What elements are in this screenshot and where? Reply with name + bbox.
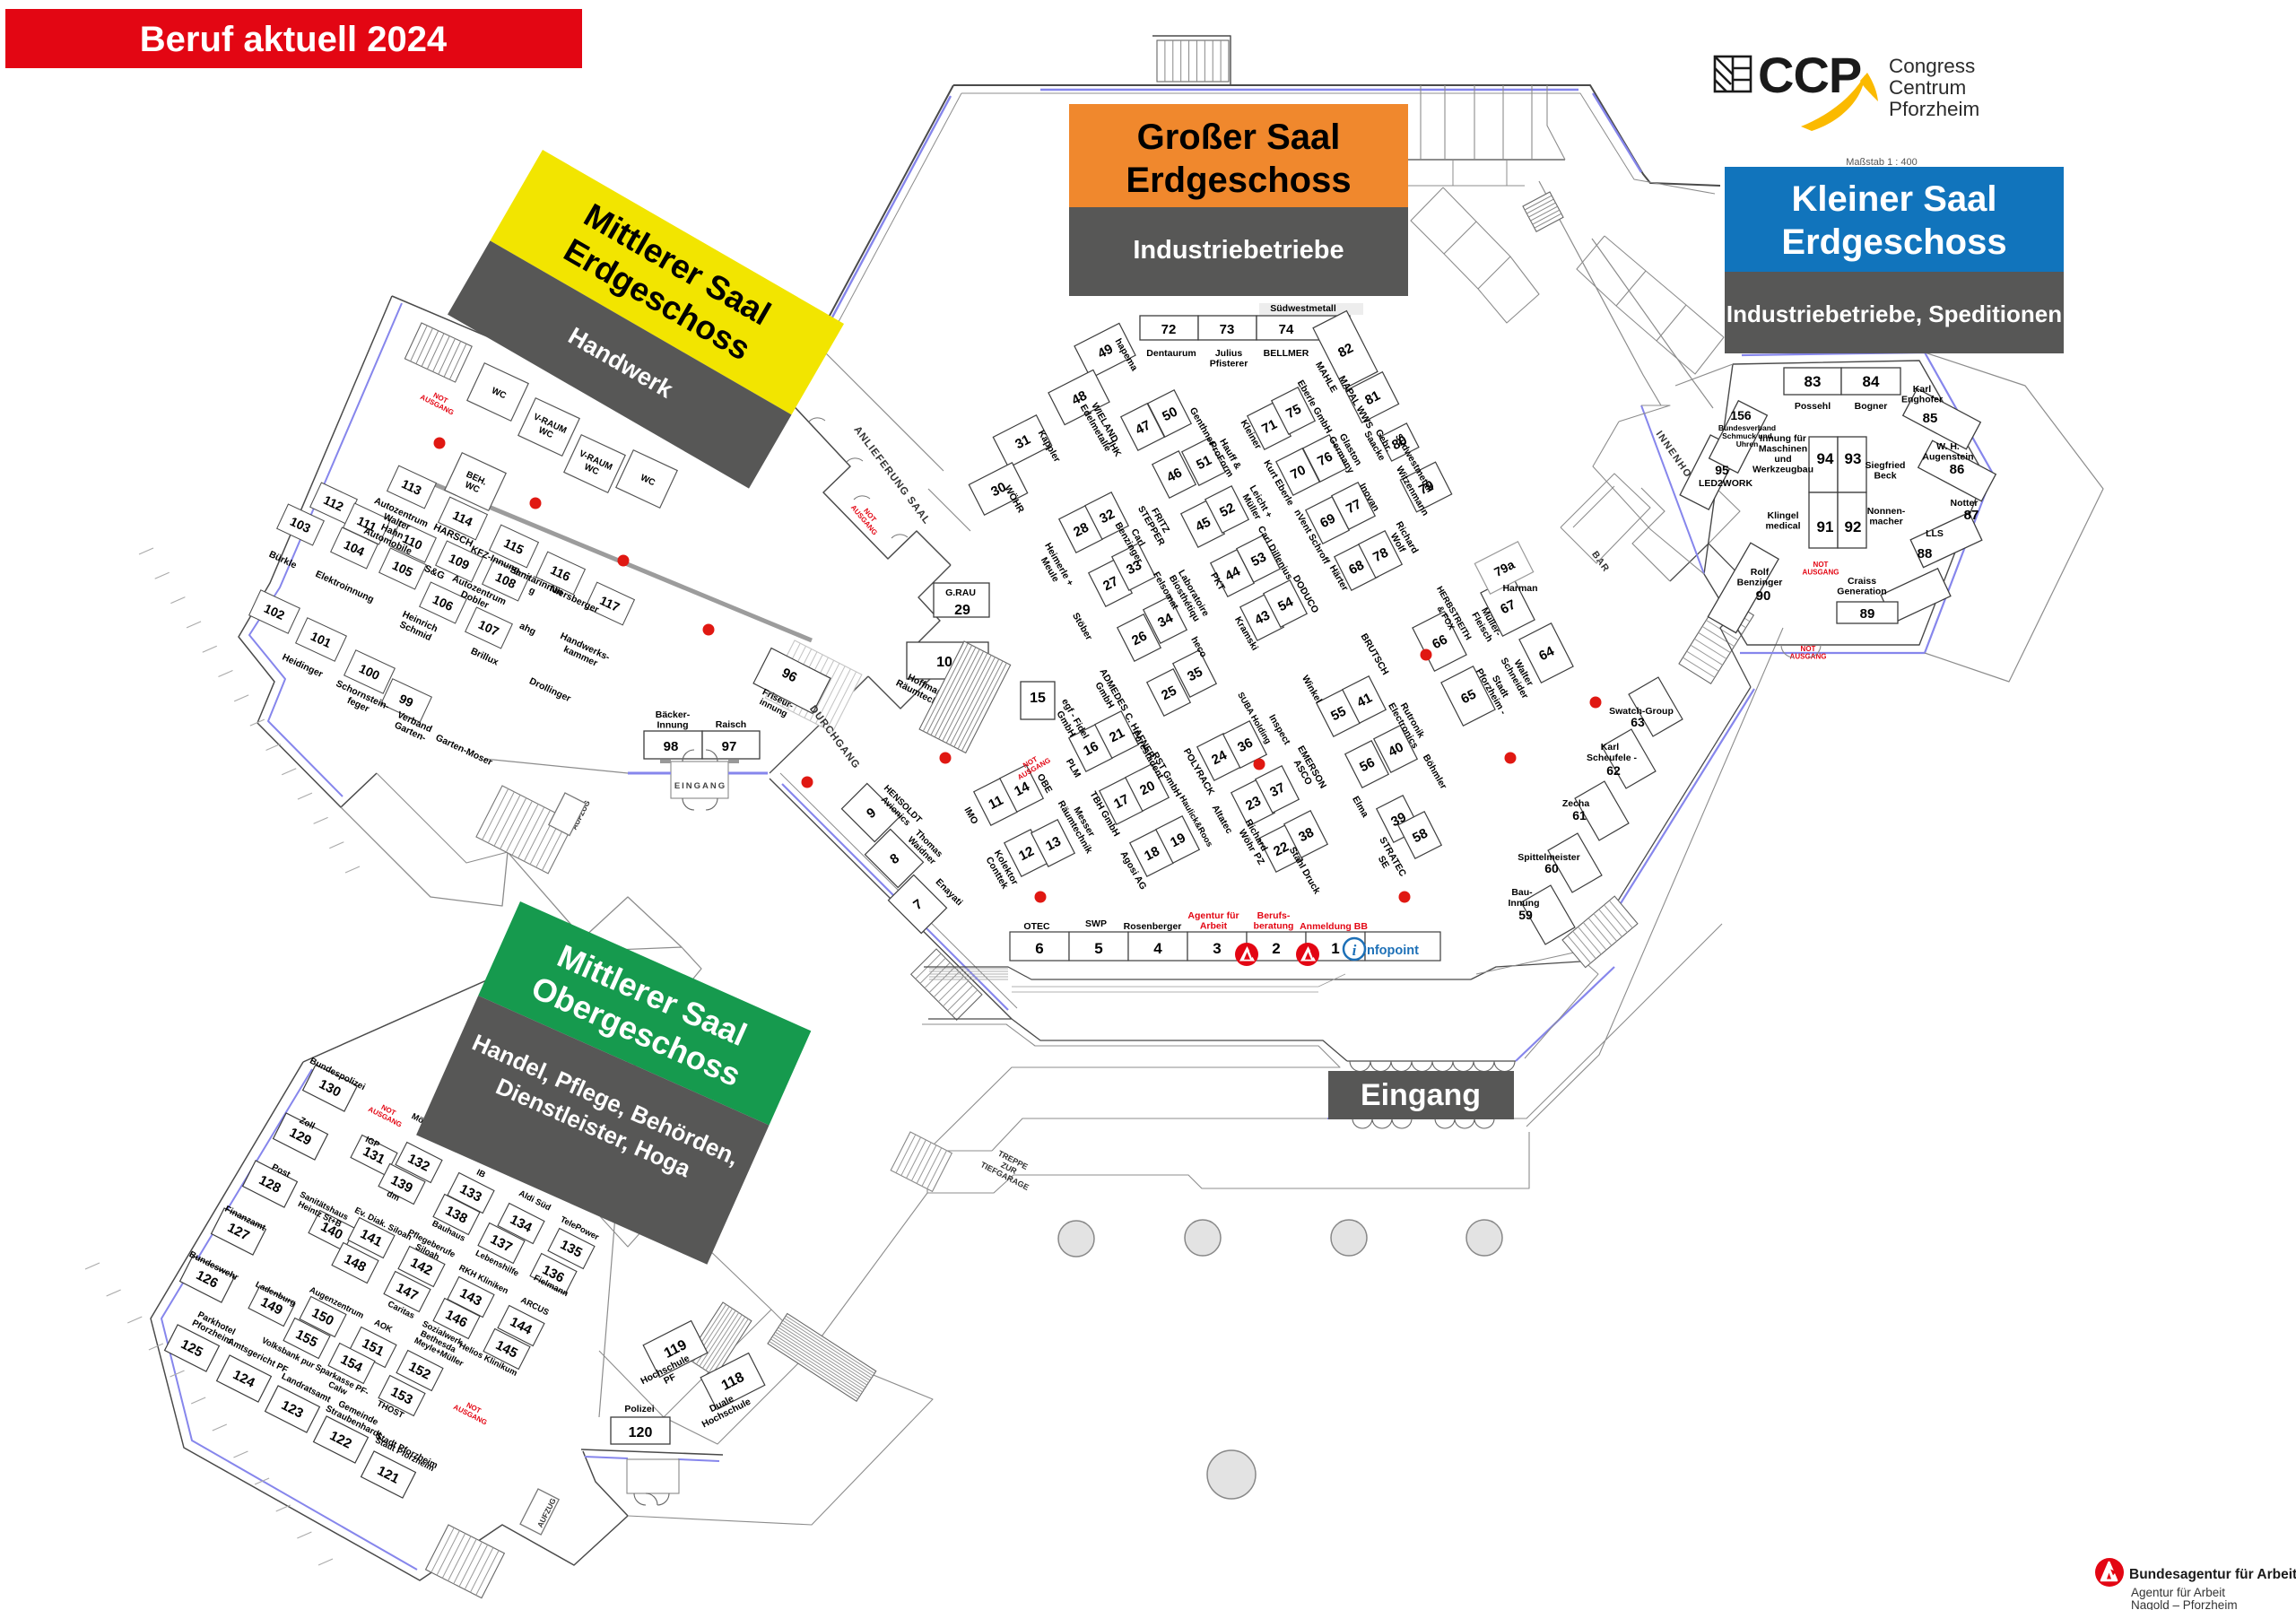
svg-text:74: 74 [1279,322,1294,337]
svg-text:72: 72 [1161,322,1177,337]
svg-text:Bäcker-Innung: Bäcker-Innung [656,709,691,731]
svg-text:2: 2 [1272,940,1280,957]
svg-text:Nonnen-macher: Nonnen-macher [1867,506,1906,527]
svg-text:OTEC: OTEC [1023,921,1050,932]
svg-text:1: 1 [1331,940,1339,957]
svg-text:156: 156 [1730,408,1752,422]
svg-text:Erdgeschoss: Erdgeschoss [1126,161,1351,200]
svg-text:nfopoint: nfopoint [1367,944,1419,958]
svg-text:85: 85 [1923,411,1938,426]
svg-text:Großer Saal: Großer Saal [1137,117,1341,157]
svg-text:Industriebetriebe, Speditionen: Industriebetriebe, Speditionen [1726,300,2062,327]
svg-text:Scheufele -: Scheufele - [1587,753,1638,763]
svg-text:73: 73 [1220,322,1235,337]
svg-text:i: i [1352,942,1357,959]
svg-text:JuliusPfisterer: JuliusPfisterer [1210,348,1248,370]
svg-text:EINGANG: EINGANG [674,781,726,791]
svg-text:10: 10 [936,655,952,670]
svg-text:29: 29 [954,603,970,618]
svg-text:Bogner: Bogner [1855,401,1888,412]
svg-text:Raisch: Raisch [716,719,746,730]
svg-text:89: 89 [1860,606,1875,622]
svg-text:83: 83 [1805,373,1822,390]
svg-text:Industriebetriebe: Industriebetriebe [1133,236,1344,265]
svg-text:Agentur für Arbeit: Agentur für Arbeit [2131,1586,2225,1599]
svg-text:90: 90 [1756,588,1771,604]
svg-text:4: 4 [1153,940,1162,957]
svg-text:63: 63 [1631,715,1645,729]
svg-text:61: 61 [1572,808,1587,822]
svg-text:Karl: Karl [1601,742,1620,753]
svg-text:95: 95 [1715,463,1729,477]
svg-text:Rosenberger: Rosenberger [1124,921,1182,932]
svg-text:62: 62 [1606,763,1621,778]
svg-text:Maßstab 1 : 400: Maßstab 1 : 400 [1846,157,1918,168]
svg-text:Berufs-beratung: Berufs-beratung [1254,910,1294,932]
svg-text:5: 5 [1094,940,1102,957]
svg-text:120: 120 [629,1425,653,1440]
svg-text:84: 84 [1863,373,1880,390]
svg-text:15: 15 [1030,691,1046,706]
svg-text:Bau-: Bau- [1511,887,1533,898]
svg-text:Eingang: Eingang [1361,1078,1481,1112]
svg-text:60: 60 [1544,861,1559,875]
svg-text:CongressCentrumPforzheim: CongressCentrumPforzheim [1889,55,1979,120]
svg-text:87: 87 [1964,508,1979,523]
svg-text:3: 3 [1213,940,1221,957]
svg-text:88: 88 [1918,546,1933,561]
svg-text:97: 97 [722,739,737,754]
svg-text:LLS: LLS [1926,528,1944,539]
svg-text:86: 86 [1950,462,1965,477]
svg-text:91: 91 [1817,518,1834,535]
svg-text:94: 94 [1817,450,1834,467]
svg-text:Südwestmetall: Südwestmetall [1270,303,1336,314]
svg-text:LED2WORK: LED2WORK [1699,478,1753,489]
svg-text:SWP: SWP [1085,918,1107,929]
svg-text:Klingelmedical: Klingelmedical [1765,510,1800,532]
svg-text:92: 92 [1845,518,1862,535]
svg-text:BELLMER: BELLMER [1264,348,1309,359]
svg-text:Bundesagentur für Arbeit: Bundesagentur für Arbeit [2129,1567,2296,1582]
svg-text:93: 93 [1845,450,1862,467]
svg-text:6: 6 [1035,940,1043,957]
svg-text:59: 59 [1518,908,1533,922]
svg-text:G.RAU: G.RAU [945,587,976,598]
svg-text:Dentaurum: Dentaurum [1146,348,1196,359]
svg-text:Polizei: Polizei [624,1404,654,1414]
svg-text:Anmeldung BB: Anmeldung BB [1300,921,1368,932]
svg-text:Harman: Harman [1502,583,1537,594]
svg-text:98: 98 [664,739,679,754]
svg-text:Kleiner Saal: Kleiner Saal [1791,179,1996,219]
svg-text:Erdgeschoss: Erdgeschoss [1781,222,2006,262]
svg-text:Beruf aktuell 2024: Beruf aktuell 2024 [140,20,448,59]
svg-text:CCP: CCP [1758,47,1861,103]
svg-text:Nagold – Pforzheim: Nagold – Pforzheim [2131,1598,2238,1610]
svg-text:Possehl: Possehl [1795,401,1831,412]
